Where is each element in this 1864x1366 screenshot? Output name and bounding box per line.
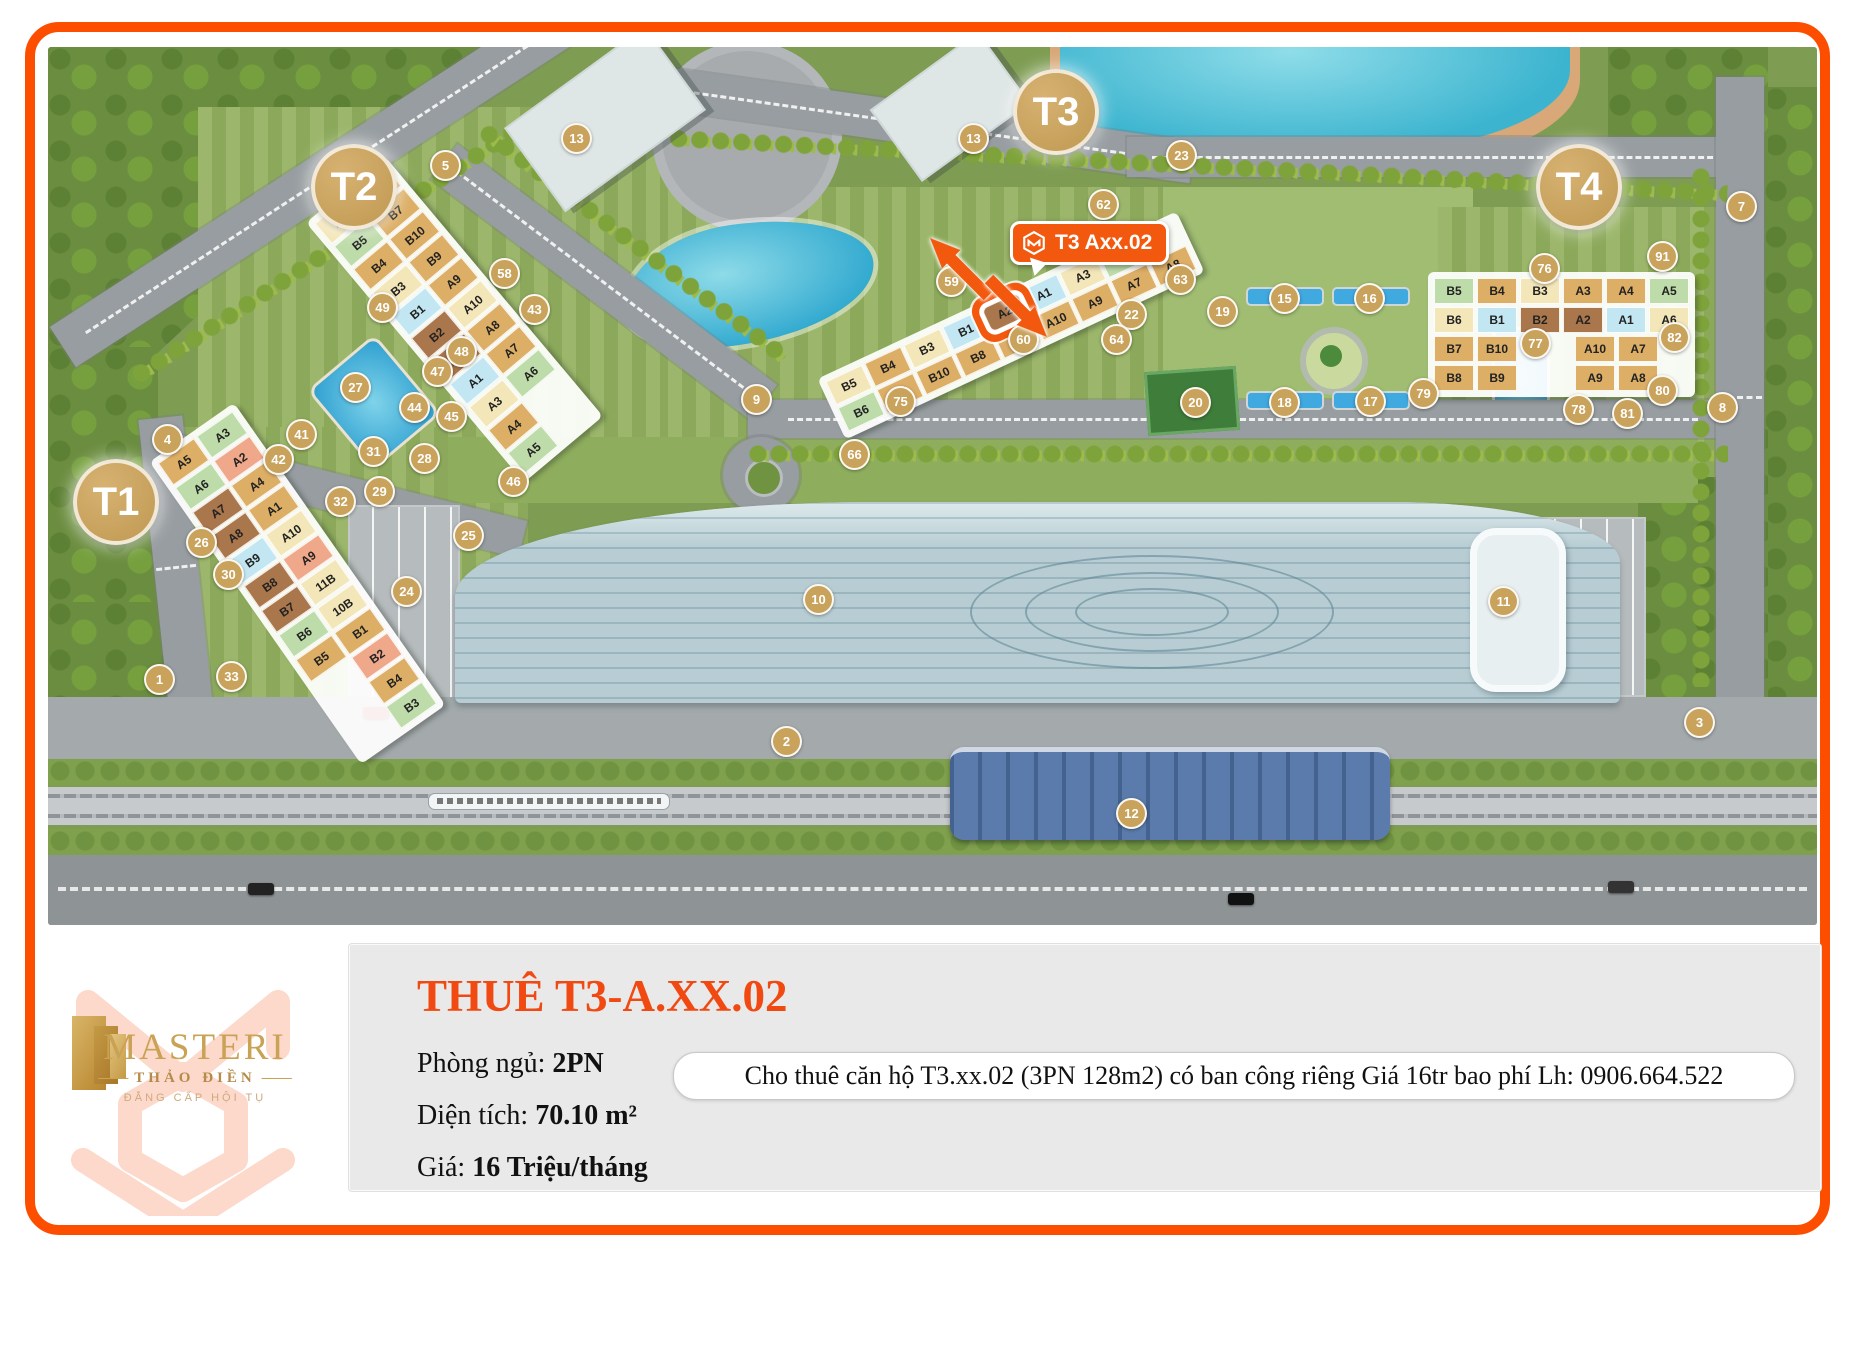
unit-T4-B7[interactable]: B7: [1434, 336, 1474, 362]
tree-row: [748, 443, 1728, 465]
tower-badge-T3[interactable]: T3: [1013, 69, 1099, 155]
map-marker-11[interactable]: 11: [1488, 586, 1519, 617]
selected-unit-callout[interactable]: T3 Axx.02: [1010, 221, 1169, 265]
map-marker-12[interactable]: 12: [1116, 798, 1147, 829]
map-marker-42[interactable]: 42: [263, 444, 294, 475]
unit-T4-B5[interactable]: B5: [1434, 278, 1474, 304]
map-marker-23[interactable]: 23: [1166, 140, 1197, 171]
masteri-logo-icon: [1021, 230, 1047, 256]
map-marker-7[interactable]: 7: [1726, 191, 1757, 222]
unit-T4-A9[interactable]: A9: [1575, 365, 1615, 391]
map-marker-10[interactable]: 10: [803, 584, 834, 615]
map-marker-28[interactable]: 28: [409, 443, 440, 474]
metro-station: [950, 747, 1390, 840]
map-marker-18[interactable]: 18: [1269, 387, 1300, 418]
map-marker-79[interactable]: 79: [1408, 378, 1439, 409]
tower-badge-T2[interactable]: T2: [311, 144, 397, 230]
map-marker-91[interactable]: 91: [1647, 241, 1678, 272]
unit-T4-A3[interactable]: A3: [1563, 278, 1603, 304]
forest-right: [1764, 87, 1817, 697]
map-marker-75[interactable]: 75: [885, 386, 916, 417]
access-road: [48, 697, 1817, 759]
car: [1228, 893, 1254, 905]
unit-T4-B4[interactable]: B4: [1477, 278, 1517, 304]
map-marker-19[interactable]: 19: [1207, 296, 1238, 327]
map-marker-77[interactable]: 77: [1520, 328, 1551, 359]
car: [1608, 881, 1634, 893]
unit-T4-B10[interactable]: B10: [1477, 336, 1517, 362]
park-fountain: [1300, 327, 1368, 395]
map-marker-24[interactable]: 24: [391, 576, 422, 607]
map-marker-8[interactable]: 8: [1707, 392, 1738, 423]
map-marker-62[interactable]: 62: [1088, 189, 1119, 220]
train: [428, 793, 670, 810]
map-marker-2[interactable]: 2: [771, 726, 802, 757]
map-marker-66[interactable]: 66: [839, 439, 870, 470]
tower-badge-T4[interactable]: T4: [1536, 144, 1622, 230]
brand-tagline: ĐẲNG CẤP HỘI TỤ: [90, 1092, 300, 1104]
map-marker-76[interactable]: 76: [1529, 253, 1560, 284]
unit-T4-B8[interactable]: B8: [1434, 365, 1474, 391]
map-marker-13[interactable]: 13: [561, 123, 592, 154]
site-map[interactable]: T3 Axx.02 123457891011121313151617181920…: [48, 47, 1817, 925]
map-marker-26[interactable]: 26: [186, 527, 217, 558]
map-marker-1[interactable]: 1: [144, 664, 175, 695]
map-marker-78[interactable]: 78: [1563, 394, 1594, 425]
brand-subtitle: THẢO ĐIỀN: [90, 1070, 300, 1087]
map-marker-48[interactable]: 48: [446, 336, 477, 367]
map-marker-49[interactable]: 49: [367, 292, 398, 323]
bedrooms-label: Phòng ngủ:: [417, 1048, 545, 1079]
tower-badge-T1[interactable]: T1: [73, 459, 159, 545]
map-marker-80[interactable]: 80: [1647, 375, 1678, 406]
map-marker-30[interactable]: 30: [213, 559, 244, 590]
map-marker-15[interactable]: 15: [1269, 283, 1300, 314]
car: [248, 883, 274, 895]
highway: [48, 855, 1817, 925]
unit-T4-A10[interactable]: A10: [1575, 336, 1615, 362]
map-marker-17[interactable]: 17: [1355, 386, 1386, 417]
listing-title: THUÊ T3-A.XX.02: [417, 970, 787, 1022]
cluster-T4-wing-2: B6B1B2A2A1A6: [1434, 307, 1689, 333]
bedrooms-value: 2PN: [552, 1048, 603, 1079]
map-marker-33[interactable]: 33: [216, 661, 247, 692]
map-marker-16[interactable]: 16: [1354, 283, 1385, 314]
map-marker-82[interactable]: 82: [1659, 322, 1690, 353]
mall-roof-swirl: [1075, 588, 1229, 636]
unit-T4-A5[interactable]: A5: [1649, 278, 1689, 304]
unit-T4-B6[interactable]: B6: [1434, 307, 1474, 333]
selected-unit-label: T3 Axx.02: [1055, 231, 1152, 255]
map-marker-20[interactable]: 20: [1180, 387, 1211, 418]
map-marker-29[interactable]: 29: [364, 476, 395, 507]
listing-tooltip: Cho thuê căn hộ T3.xx.02 (3PN 128m2) có …: [673, 1052, 1795, 1100]
map-marker-41[interactable]: 41: [286, 419, 317, 450]
unit-T4-A2[interactable]: A2: [1563, 307, 1603, 333]
map-marker-3[interactable]: 3: [1684, 707, 1715, 738]
cluster-T4-wing-1: B5B4B3A3A4A5: [1434, 278, 1689, 304]
map-marker-44[interactable]: 44: [399, 392, 430, 423]
unit-T4-A1[interactable]: A1: [1606, 307, 1646, 333]
map-marker-64[interactable]: 64: [1101, 324, 1132, 355]
area-row: Diện tích: 70.10 m²: [417, 1100, 637, 1132]
map-marker-43[interactable]: 43: [519, 294, 550, 325]
unit-T4-A4[interactable]: A4: [1606, 278, 1646, 304]
railway: [48, 787, 1817, 825]
map-marker-32[interactable]: 32: [325, 486, 356, 517]
mall-tower: [1470, 528, 1566, 692]
brand-name: MASTERI: [90, 1026, 300, 1069]
map-marker-81[interactable]: 81: [1612, 398, 1643, 429]
map-marker-58[interactable]: 58: [489, 258, 520, 289]
unit-T4-B1[interactable]: B1: [1477, 307, 1517, 333]
area-label: Diện tích:: [417, 1100, 528, 1131]
price-label: Giá:: [417, 1152, 465, 1183]
unit-T4-A7[interactable]: A7: [1618, 336, 1658, 362]
tree-verge-north: [48, 759, 1817, 785]
area-value: 70.10 m²: [535, 1100, 637, 1131]
info-panel: THUÊ T3-A.XX.02 Phòng ngủ: 2PN Diện tích…: [348, 943, 1822, 1192]
price-value: 16 Triệu/tháng: [472, 1152, 648, 1183]
map-marker-5[interactable]: 5: [430, 150, 461, 181]
map-marker-9[interactable]: 9: [741, 384, 772, 415]
map-marker-46[interactable]: 46: [498, 466, 529, 497]
map-marker-25[interactable]: 25: [453, 520, 484, 551]
unit-T4-B9[interactable]: B9: [1477, 365, 1517, 391]
brand-logo: MASTERI THẢO ĐIỀN ĐẲNG CẤP HỘI TỤ: [58, 952, 308, 1216]
map-marker-4[interactable]: 4: [152, 424, 183, 455]
tree-column: [1690, 167, 1712, 687]
map-marker-45[interactable]: 45: [436, 401, 467, 432]
cluster-T4-wing-3: B7B10A10A7: [1434, 336, 1689, 362]
map-marker-27[interactable]: 27: [340, 372, 371, 403]
map-marker-63[interactable]: 63: [1165, 264, 1196, 295]
bedrooms-row: Phòng ngủ: 2PN: [417, 1048, 604, 1080]
price-row: Giá: 16 Triệu/tháng: [417, 1152, 648, 1184]
map-marker-31[interactable]: 31: [358, 436, 389, 467]
tree-verge-south: [48, 829, 1817, 855]
map-marker-13[interactable]: 13: [958, 123, 989, 154]
